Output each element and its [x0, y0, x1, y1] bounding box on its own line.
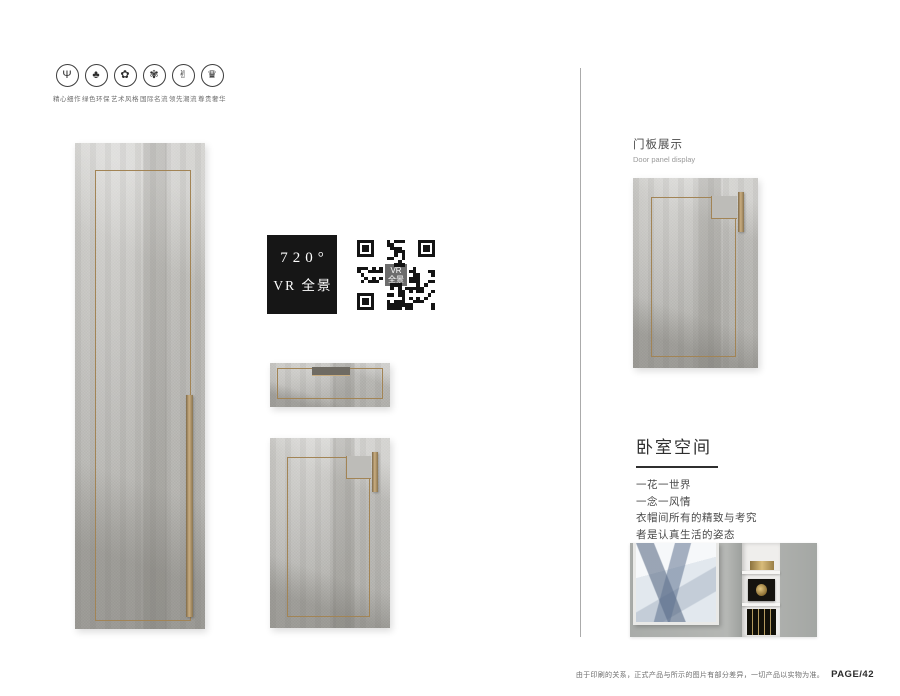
black-books [747, 609, 776, 635]
shelf-board [742, 603, 780, 606]
feature-item: ✾ 国际名流 [143, 64, 165, 103]
gold-inlay-frame [287, 457, 370, 617]
crown-icon: ♛ [201, 64, 224, 87]
section-title-zh: 门板展示 [633, 136, 695, 152]
frame-notch [711, 196, 737, 219]
feature-label: 精心细作 [53, 93, 81, 103]
mountain-painting [636, 543, 716, 622]
wall-art [633, 543, 719, 625]
gold-inlay-frame [95, 170, 191, 621]
section-title-en: Door panel display [633, 155, 695, 164]
page-footer: 由于印刷的关系，正式产品与所示的图片有部分差异，一切产品以实物为准。 PAGE/… [576, 669, 874, 680]
handle-recess [312, 367, 350, 376]
qr-finder-icon [357, 240, 374, 257]
feature-label: 领先潮流 [169, 93, 197, 103]
drawer-front-panel [270, 363, 390, 407]
feature-label: 绿色环保 [82, 93, 110, 103]
poem-line: 衣帽间所有的精致与考究 [636, 510, 757, 527]
gold-emblem [756, 584, 767, 596]
door-panel-medium [270, 438, 390, 628]
catalog-page: Ψ 精心细作 ♣ 绿色环保 ✿ 艺术风格 ✾ 国际名流 ✌ 领先潮流 ♛ 尊贵奢… [0, 0, 900, 696]
gold-handle-bar [186, 395, 193, 617]
title-underline [636, 466, 718, 468]
page-number: PAGE/42 [831, 669, 874, 680]
bookshelf [742, 543, 780, 637]
frame-notch [346, 456, 371, 479]
gold-decor-box [750, 561, 774, 570]
door-display-heading: 门板展示 Door panel display [633, 136, 695, 164]
vr-panorama-badge: 720° VR 全景 [267, 235, 337, 314]
door-panel-large [75, 143, 205, 629]
art-flower-icon: ✿ [114, 64, 137, 87]
feature-item: ♣ 绿色环保 [85, 64, 107, 103]
poem-line: 一花一世界 [636, 477, 757, 494]
qr-code: VR 全景 [353, 236, 439, 314]
poem-line: 者是认真生活的姿态 [636, 527, 757, 544]
bedroom-interior-photo [630, 543, 817, 637]
gold-inlay-frame [651, 197, 736, 357]
vr-degree-text: 720° [267, 250, 337, 267]
shelf-board [742, 571, 780, 574]
qr-center-label: VR 全景 [385, 264, 407, 286]
divider-line [580, 68, 581, 637]
vr-label-text: VR 全景 [267, 274, 337, 294]
feature-label: 尊贵奢华 [198, 93, 226, 103]
poem-line: 一念一风情 [636, 494, 757, 511]
gold-handle-bar [372, 452, 378, 492]
gold-handle-bar [738, 192, 744, 232]
feature-label: 艺术风格 [111, 93, 139, 103]
feature-item: Ψ 精心细作 [56, 64, 78, 103]
feature-item: ♛ 尊贵奢华 [201, 64, 223, 103]
medal-flower-icon: ✾ [143, 64, 166, 87]
feature-item: ✿ 艺术风格 [114, 64, 136, 103]
feature-label: 国际名流 [140, 93, 168, 103]
tree-icon: ♣ [85, 64, 108, 87]
print-disclaimer: 由于印刷的关系，正式产品与所示的图片有部分差异，一切产品以实物为准。 [576, 670, 824, 680]
door-panel-display [633, 178, 758, 368]
hands-icon: ✌ [172, 64, 195, 87]
feature-icons: Ψ 精心细作 ♣ 绿色环保 ✿ 艺术风格 ✾ 国际名流 ✌ 领先潮流 ♛ 尊贵奢… [56, 64, 223, 103]
trophy-icon: Ψ [56, 64, 79, 87]
qr-finder-icon [357, 293, 374, 310]
poem-text: 一花一世界 一念一风情 衣帽间所有的精致与考究 者是认真生活的姿态 [636, 477, 757, 543]
black-decor-box [748, 579, 775, 601]
feature-item: ✌ 领先潮流 [172, 64, 194, 103]
bedroom-section: 卧室空间 一花一世界 一念一风情 衣帽间所有的精致与考究 者是认真生活的姿态 [636, 433, 757, 543]
qr-finder-icon [418, 240, 435, 257]
bedroom-title: 卧室空间 [636, 433, 757, 458]
